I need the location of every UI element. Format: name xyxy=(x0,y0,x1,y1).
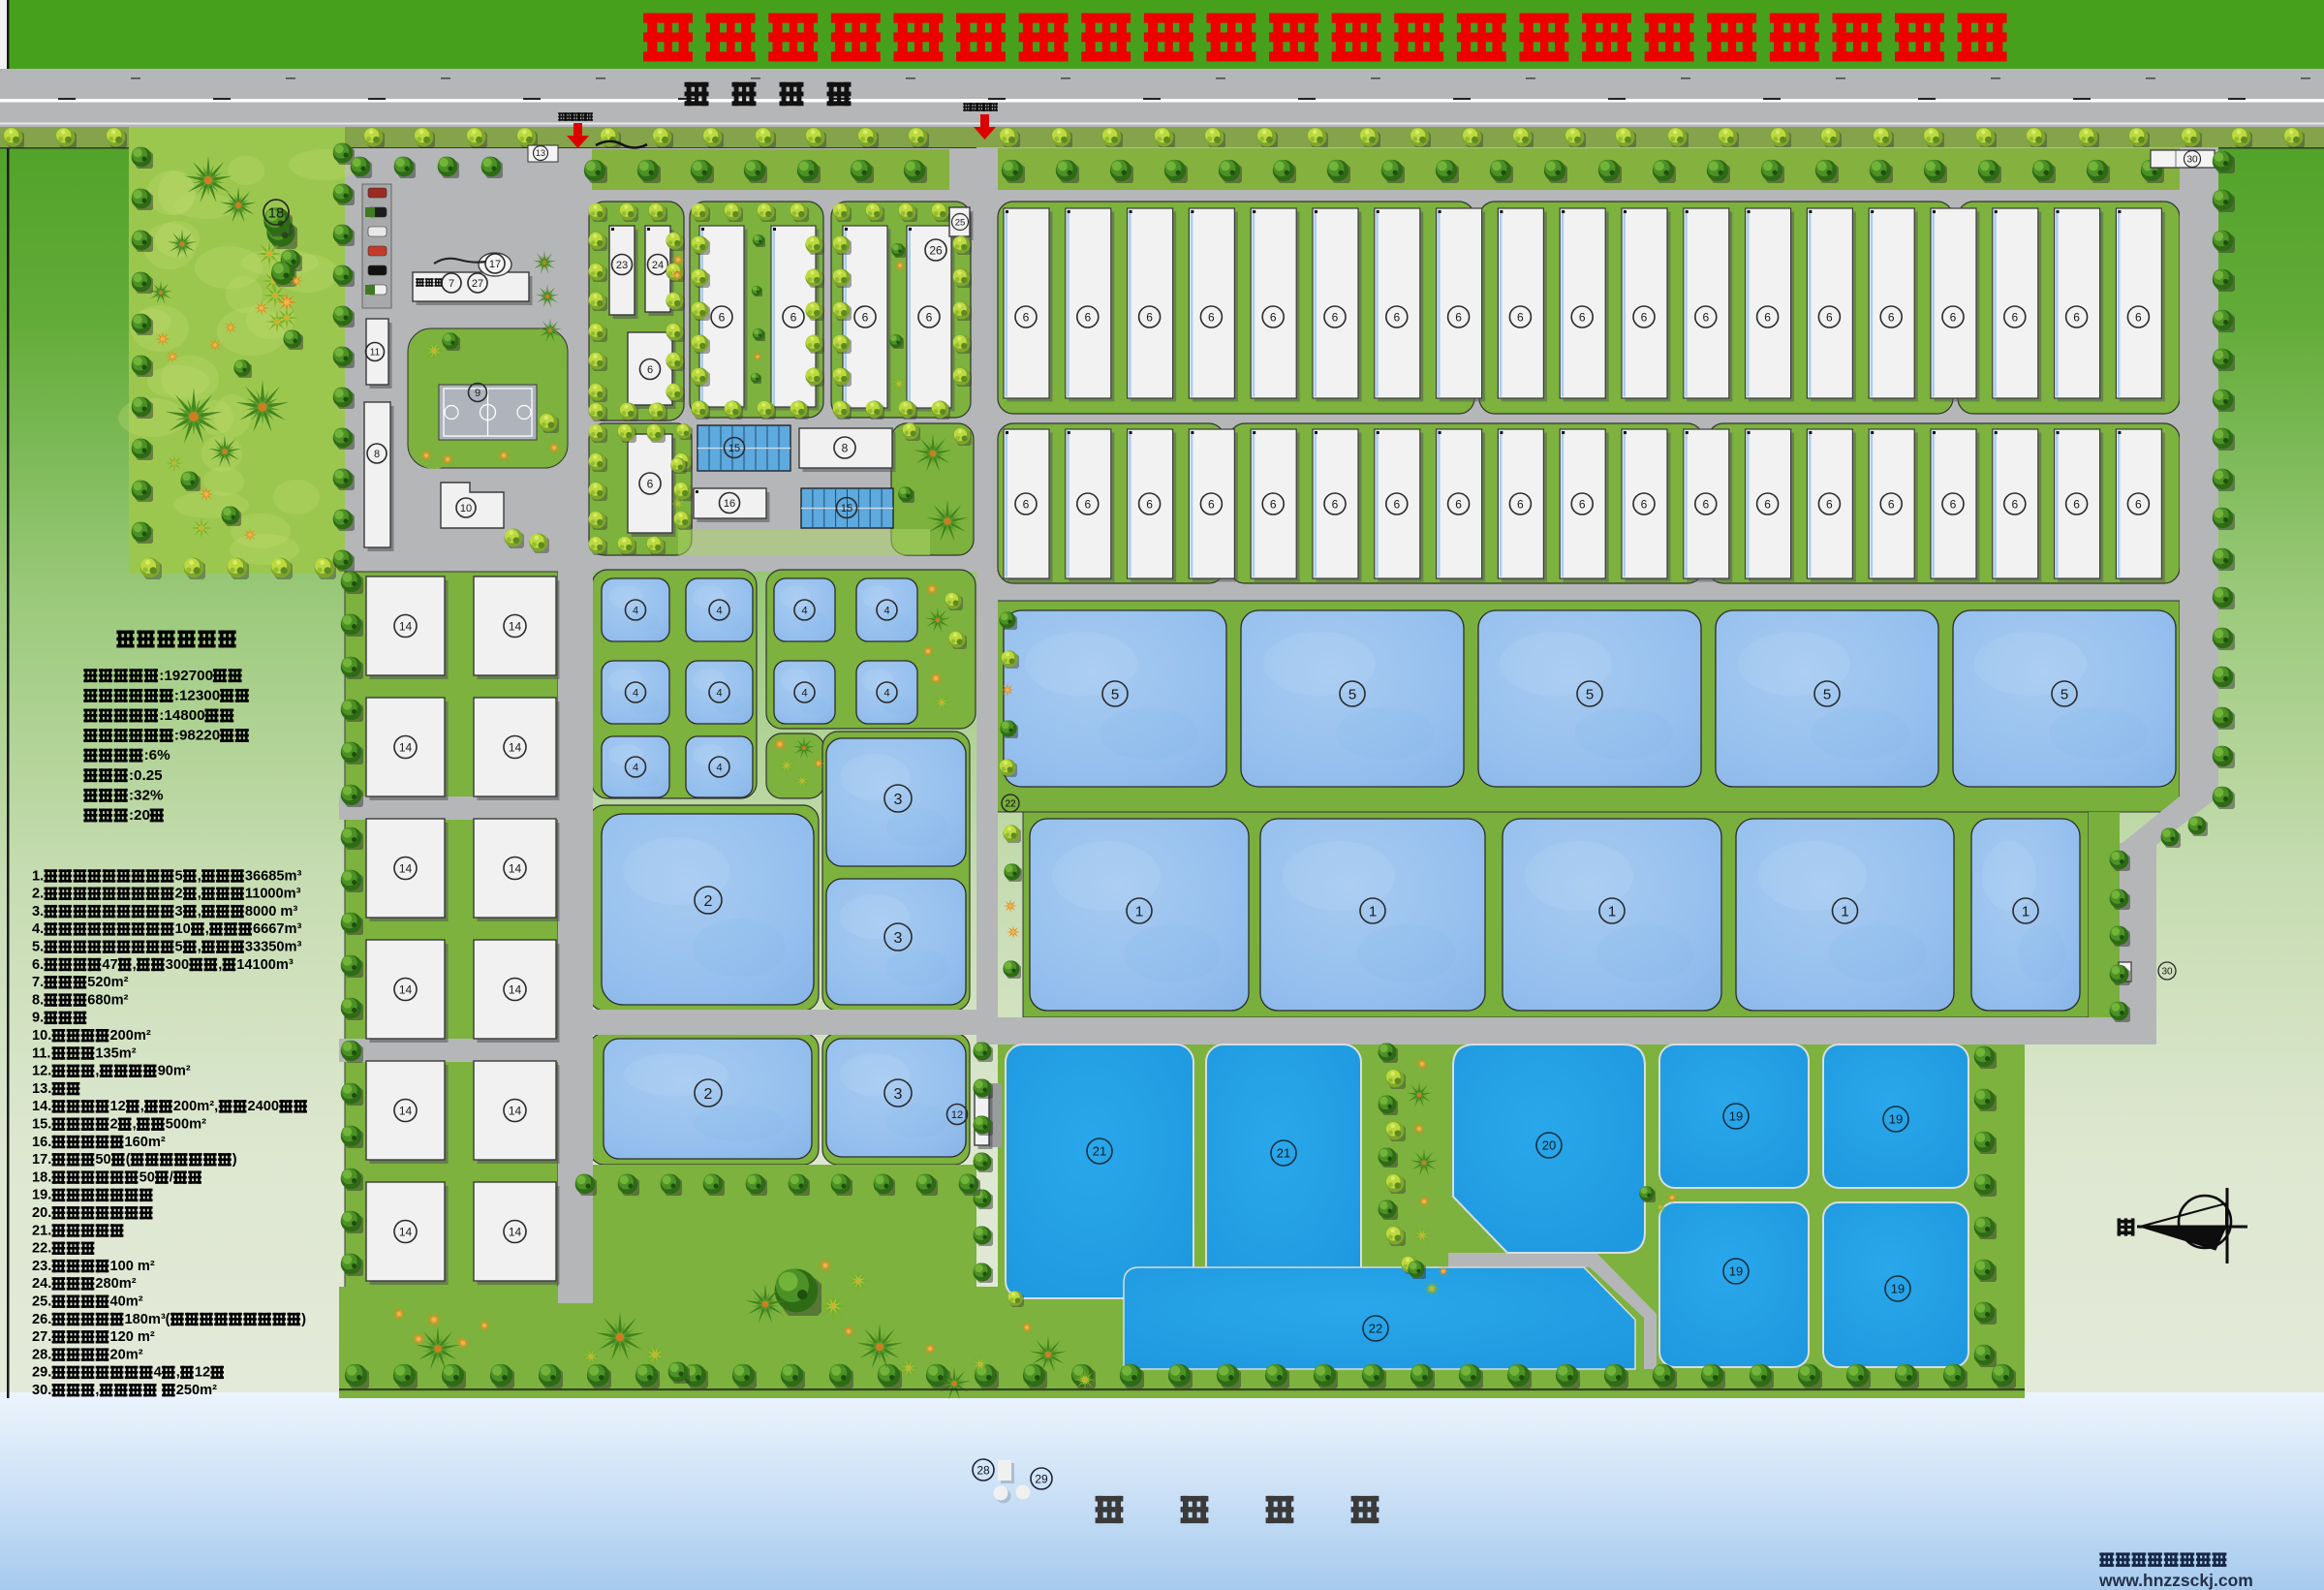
svg-text:25: 25 xyxy=(955,217,966,228)
svg-text:22.: 22. xyxy=(32,1241,51,1257)
svg-text:21: 21 xyxy=(1277,1146,1290,1161)
svg-text::0.25: :0.25 xyxy=(129,767,163,784)
svg-text:,: , xyxy=(198,904,201,920)
svg-text:20: 20 xyxy=(1542,1138,1556,1153)
svg-text:16: 16 xyxy=(724,498,735,510)
svg-text:6: 6 xyxy=(1764,497,1771,511)
svg-text:14: 14 xyxy=(399,1104,413,1117)
svg-text:6: 6 xyxy=(1270,497,1277,511)
svg-text:500m²: 500m² xyxy=(166,1117,206,1133)
svg-text:4: 4 xyxy=(633,606,638,617)
svg-text:6: 6 xyxy=(1393,310,1400,324)
svg-text:40m²: 40m² xyxy=(110,1294,143,1310)
svg-text:4: 4 xyxy=(801,688,807,700)
svg-text:6: 6 xyxy=(719,310,726,324)
svg-text:4: 4 xyxy=(716,688,722,700)
svg-text:4: 4 xyxy=(716,606,722,617)
svg-text:6: 6 xyxy=(1023,310,1030,324)
svg-text:13.: 13. xyxy=(32,1081,51,1097)
svg-text:26: 26 xyxy=(929,243,943,257)
svg-text:6: 6 xyxy=(2011,497,2018,511)
svg-text:280m²: 280m² xyxy=(95,1276,136,1292)
svg-text:14: 14 xyxy=(399,982,413,996)
svg-text::20: :20 xyxy=(129,807,150,824)
svg-text:7.: 7. xyxy=(32,975,44,990)
svg-text:8000 m³: 8000 m³ xyxy=(245,904,297,920)
svg-text:6: 6 xyxy=(1208,497,1215,511)
svg-text:6: 6 xyxy=(1826,497,1833,511)
svg-text:8.: 8. xyxy=(32,992,44,1008)
svg-text:www.hnzzsckj.com: www.hnzzsckj.com xyxy=(2098,1571,2253,1590)
svg-text::192700: :192700 xyxy=(159,668,213,684)
svg-text:4: 4 xyxy=(154,1365,163,1381)
svg-text:6: 6 xyxy=(1950,310,1957,324)
svg-text:30: 30 xyxy=(2186,155,2198,166)
svg-text:6667m³: 6667m³ xyxy=(253,921,301,937)
svg-text:2: 2 xyxy=(110,1117,118,1133)
svg-text:12: 12 xyxy=(951,1109,963,1121)
svg-text:,: , xyxy=(198,940,201,955)
svg-text:14: 14 xyxy=(399,619,413,633)
svg-text:6: 6 xyxy=(1579,497,1586,511)
svg-text:6: 6 xyxy=(2135,497,2142,511)
svg-text:6: 6 xyxy=(1270,310,1277,324)
svg-text:11.: 11. xyxy=(32,1045,50,1061)
svg-text:12.: 12. xyxy=(32,1064,51,1079)
svg-text:2: 2 xyxy=(704,1086,713,1103)
svg-text:,: , xyxy=(176,1365,180,1381)
svg-text:14: 14 xyxy=(509,619,522,633)
svg-text:,: , xyxy=(140,1099,144,1114)
svg-text:14.: 14. xyxy=(32,1099,51,1114)
svg-text:5: 5 xyxy=(1586,686,1594,702)
svg-text:30.: 30. xyxy=(32,1383,51,1398)
svg-text:12: 12 xyxy=(195,1365,210,1381)
svg-text:6: 6 xyxy=(1455,497,1462,511)
svg-text:1: 1 xyxy=(1608,903,1616,920)
svg-text:,: , xyxy=(198,868,201,884)
svg-text:6: 6 xyxy=(1146,497,1153,511)
svg-text:19: 19 xyxy=(1729,1109,1743,1124)
svg-text:21.: 21. xyxy=(32,1223,51,1238)
svg-text:11000m³: 11000m³ xyxy=(245,887,301,902)
svg-text:6: 6 xyxy=(1084,497,1091,511)
svg-text:3: 3 xyxy=(175,904,183,920)
svg-text:6: 6 xyxy=(647,364,653,376)
svg-text:10.: 10. xyxy=(32,1028,51,1044)
svg-text:90m²: 90m² xyxy=(158,1064,191,1079)
svg-text:,: , xyxy=(133,957,137,973)
svg-text:50: 50 xyxy=(139,1169,155,1185)
svg-text:1: 1 xyxy=(1369,903,1377,920)
svg-text::32%: :32% xyxy=(129,787,164,803)
svg-text:4: 4 xyxy=(633,688,638,700)
svg-text:3.: 3. xyxy=(32,904,44,920)
svg-text:19: 19 xyxy=(1889,1112,1903,1127)
svg-text:6: 6 xyxy=(2073,310,2080,324)
svg-text:2: 2 xyxy=(704,893,713,910)
svg-text:200m²,: 200m², xyxy=(173,1099,218,1114)
svg-text:6: 6 xyxy=(1332,310,1339,324)
svg-text:14: 14 xyxy=(399,1225,413,1238)
svg-text::12300: :12300 xyxy=(174,687,220,703)
svg-text:47: 47 xyxy=(102,957,117,973)
svg-text:29: 29 xyxy=(1035,1472,1048,1485)
svg-text:12: 12 xyxy=(110,1099,126,1114)
svg-text:25.: 25. xyxy=(32,1294,51,1310)
svg-text:18: 18 xyxy=(268,204,285,221)
svg-text:14100m³: 14100m³ xyxy=(236,957,294,973)
svg-text:6: 6 xyxy=(790,310,797,324)
svg-text:1: 1 xyxy=(1841,903,1848,920)
svg-text:6: 6 xyxy=(647,477,654,490)
svg-text:28.: 28. xyxy=(32,1347,51,1362)
svg-text:6.: 6. xyxy=(32,957,44,973)
svg-text:18.: 18. xyxy=(32,1169,51,1185)
svg-text:6: 6 xyxy=(1641,497,1648,511)
svg-text:14: 14 xyxy=(399,740,413,754)
svg-text:3: 3 xyxy=(894,930,903,947)
svg-text:27: 27 xyxy=(472,278,483,290)
svg-text:6: 6 xyxy=(862,310,869,324)
svg-text:6: 6 xyxy=(1393,497,1400,511)
svg-text:6: 6 xyxy=(1455,310,1462,324)
svg-text:/: / xyxy=(170,1169,173,1185)
svg-text:1: 1 xyxy=(2022,903,2030,920)
svg-text:10: 10 xyxy=(460,503,472,514)
svg-text:4: 4 xyxy=(883,688,889,700)
svg-text:9: 9 xyxy=(475,388,480,399)
svg-text:,: , xyxy=(198,887,201,902)
svg-text:5: 5 xyxy=(1348,686,1356,702)
svg-text:21: 21 xyxy=(1093,1144,1106,1159)
svg-text:135m²: 135m² xyxy=(95,1045,136,1061)
svg-text:2: 2 xyxy=(175,887,183,902)
svg-text:6: 6 xyxy=(1888,310,1895,324)
svg-text:4: 4 xyxy=(883,606,889,617)
svg-text:,: , xyxy=(95,1383,99,1398)
svg-text:5: 5 xyxy=(175,868,183,884)
svg-text:7: 7 xyxy=(449,278,454,290)
svg-text:6: 6 xyxy=(1084,310,1091,324)
svg-text:23: 23 xyxy=(616,260,628,271)
svg-text:6: 6 xyxy=(1208,310,1215,324)
svg-text:680m²: 680m² xyxy=(87,992,128,1008)
svg-text:24.: 24. xyxy=(32,1276,51,1292)
svg-text:3: 3 xyxy=(894,1086,903,1103)
svg-text::14800: :14800 xyxy=(159,707,204,724)
svg-text:6: 6 xyxy=(1332,497,1339,511)
svg-text:36685m³: 36685m³ xyxy=(245,868,302,884)
svg-text:1.: 1. xyxy=(32,868,44,884)
svg-text:6: 6 xyxy=(1579,310,1586,324)
svg-text:19: 19 xyxy=(1729,1264,1743,1279)
svg-text:180m³(: 180m³( xyxy=(125,1312,170,1327)
svg-text:14: 14 xyxy=(509,861,522,875)
svg-text:15.: 15. xyxy=(32,1117,51,1133)
svg-text:10: 10 xyxy=(175,921,191,937)
svg-text:11: 11 xyxy=(370,348,381,359)
svg-text::98220: :98220 xyxy=(174,728,220,744)
svg-text:4: 4 xyxy=(716,763,722,774)
svg-text:23.: 23. xyxy=(32,1259,51,1274)
svg-text:14: 14 xyxy=(509,982,522,996)
svg-text:6: 6 xyxy=(1888,497,1895,511)
svg-text:): ) xyxy=(301,1312,306,1327)
svg-text:17: 17 xyxy=(489,259,501,270)
svg-text:6: 6 xyxy=(2135,310,2142,324)
svg-text:160m²: 160m² xyxy=(125,1135,166,1150)
svg-text:16.: 16. xyxy=(32,1135,51,1150)
svg-text:): ) xyxy=(232,1152,237,1168)
svg-text:20m²: 20m² xyxy=(110,1347,143,1362)
svg-text:6: 6 xyxy=(1702,310,1709,324)
svg-text:120 m²: 120 m² xyxy=(110,1329,155,1345)
svg-text:19.: 19. xyxy=(32,1188,51,1203)
svg-text:14: 14 xyxy=(509,740,522,754)
svg-text:20.: 20. xyxy=(32,1205,51,1221)
svg-text:6: 6 xyxy=(1702,497,1709,511)
svg-text:250m²: 250m² xyxy=(176,1383,217,1398)
svg-text:13: 13 xyxy=(536,148,545,158)
svg-text:6: 6 xyxy=(926,310,933,324)
svg-text:14: 14 xyxy=(509,1225,522,1238)
svg-text::6%: :6% xyxy=(144,747,171,764)
svg-text:1: 1 xyxy=(1135,903,1143,920)
svg-text:6: 6 xyxy=(1023,497,1030,511)
svg-text:6: 6 xyxy=(1517,497,1524,511)
svg-text:5.: 5. xyxy=(32,940,44,955)
svg-text:33350m³: 33350m³ xyxy=(245,940,302,955)
svg-text:30: 30 xyxy=(2161,967,2173,978)
svg-text:6: 6 xyxy=(2011,310,2018,324)
svg-text:4: 4 xyxy=(633,763,638,774)
svg-text:28: 28 xyxy=(976,1463,990,1477)
svg-text:4: 4 xyxy=(801,606,807,617)
svg-text:6: 6 xyxy=(2073,497,2080,511)
svg-text:5: 5 xyxy=(1823,686,1831,702)
svg-text:3: 3 xyxy=(894,792,903,808)
svg-text:2.: 2. xyxy=(32,887,44,902)
svg-text:50: 50 xyxy=(95,1152,110,1168)
svg-text:6: 6 xyxy=(1764,310,1771,324)
svg-text:19: 19 xyxy=(1891,1282,1905,1296)
svg-text:26.: 26. xyxy=(32,1312,51,1327)
svg-text:,: , xyxy=(205,921,209,937)
svg-text:520m²: 520m² xyxy=(87,975,128,990)
svg-text:22: 22 xyxy=(1369,1322,1382,1336)
svg-text:4.: 4. xyxy=(32,921,44,937)
svg-text:15: 15 xyxy=(728,443,740,454)
svg-text:9.: 9. xyxy=(32,1011,44,1026)
svg-text:27.: 27. xyxy=(32,1329,51,1345)
svg-text:2400: 2400 xyxy=(248,1099,279,1114)
svg-text:,: , xyxy=(133,1117,137,1133)
svg-text:100 m²: 100 m² xyxy=(110,1259,155,1274)
svg-text:8: 8 xyxy=(842,441,849,454)
svg-text:29.: 29. xyxy=(32,1365,51,1381)
svg-text:5: 5 xyxy=(1111,686,1119,702)
svg-text:8: 8 xyxy=(374,449,380,460)
svg-text:17.: 17. xyxy=(32,1152,51,1168)
svg-text:22: 22 xyxy=(1005,799,1016,810)
svg-text:24: 24 xyxy=(652,260,664,271)
svg-text:14: 14 xyxy=(509,1104,522,1117)
svg-text:,: , xyxy=(218,957,222,973)
svg-text:6: 6 xyxy=(1950,497,1957,511)
svg-text:,: , xyxy=(95,1064,99,1079)
svg-text:15: 15 xyxy=(841,503,852,514)
svg-text:200m²: 200m² xyxy=(110,1028,151,1044)
svg-text:5: 5 xyxy=(2061,686,2068,702)
svg-text:(: ( xyxy=(126,1152,131,1168)
svg-text:300: 300 xyxy=(166,957,189,973)
svg-text:6: 6 xyxy=(1641,310,1648,324)
svg-text:14: 14 xyxy=(399,861,413,875)
svg-text:6: 6 xyxy=(1517,310,1524,324)
svg-text:5: 5 xyxy=(175,940,183,955)
svg-text:6: 6 xyxy=(1146,310,1153,324)
svg-text:6: 6 xyxy=(1826,310,1833,324)
